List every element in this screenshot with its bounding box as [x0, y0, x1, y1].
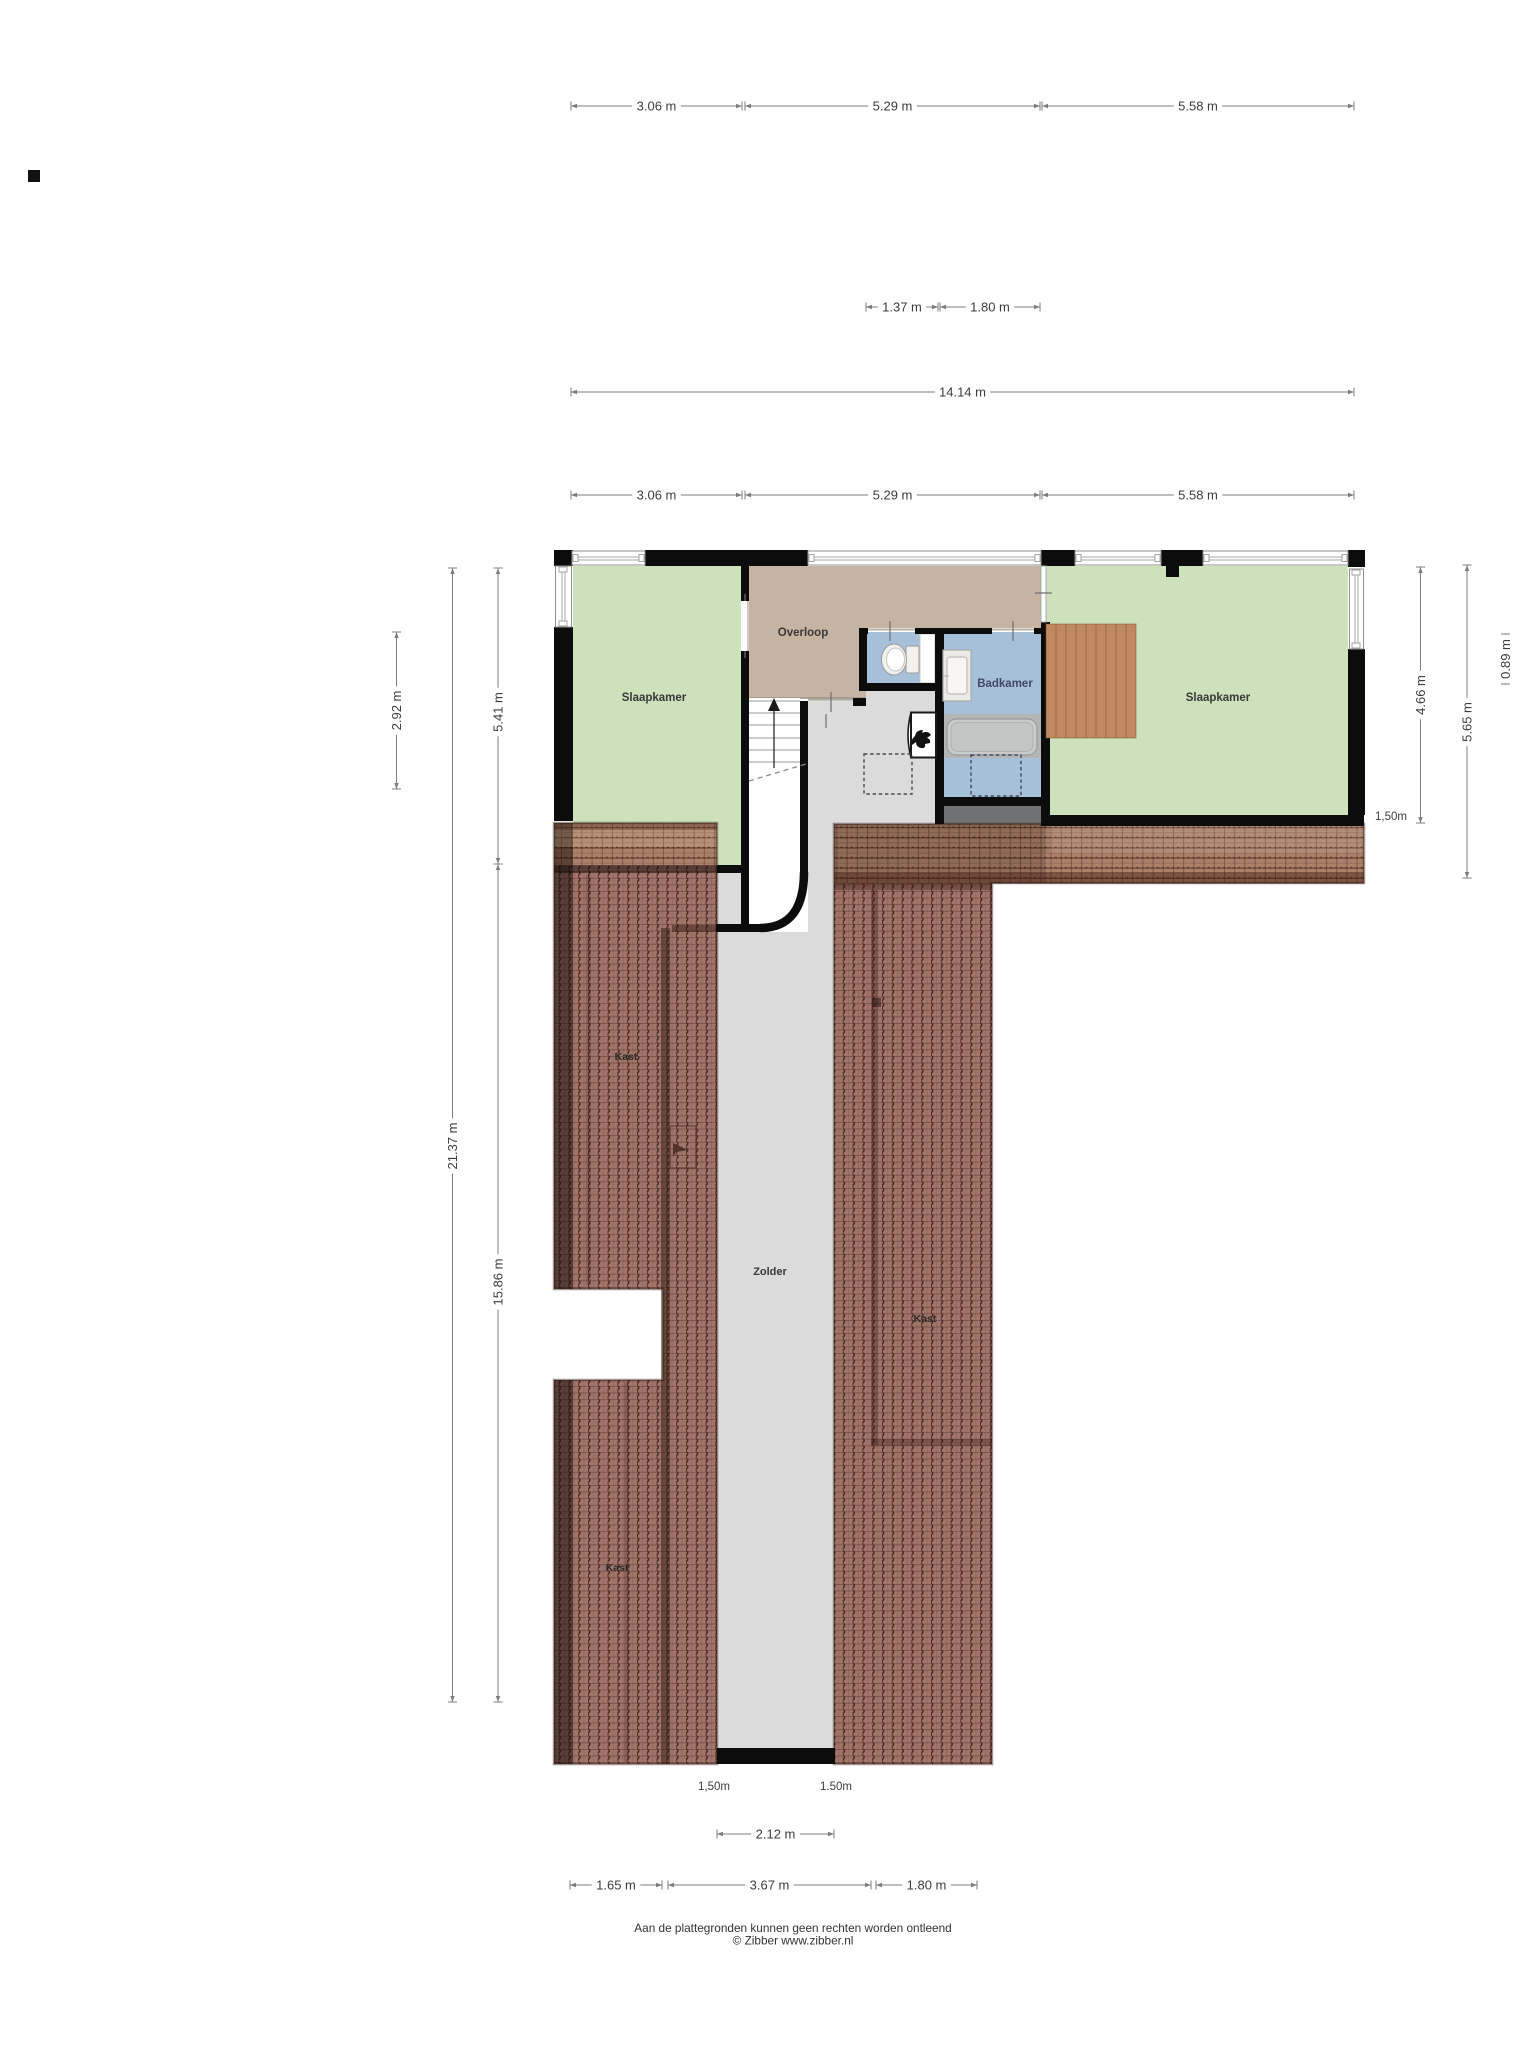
svg-text:4.66 m: 4.66 m [1413, 675, 1428, 715]
svg-text:5.65 m: 5.65 m [1460, 702, 1475, 742]
svg-text:5.29 m: 5.29 m [873, 99, 913, 114]
svg-text:3.06 m: 3.06 m [637, 99, 677, 114]
svg-text:1.50m: 1.50m [820, 1781, 852, 1793]
svg-text:2.12 m: 2.12 m [756, 1827, 796, 1842]
svg-text:Slaapkamer: Slaapkamer [622, 692, 687, 704]
svg-text:2.92 m: 2.92 m [389, 691, 404, 731]
svg-text:Kast: Kast [606, 1562, 629, 1574]
svg-text:1.65 m: 1.65 m [596, 1878, 636, 1893]
svg-text:1,50m: 1,50m [698, 1781, 730, 1793]
svg-text:© Zibber www.zibber.nl: © Zibber www.zibber.nl [733, 1934, 854, 1948]
svg-text:Badkamer: Badkamer [977, 678, 1033, 690]
svg-text:Zolder: Zolder [753, 1266, 787, 1278]
svg-text:5.58 m: 5.58 m [1178, 99, 1218, 114]
svg-text:Slaapkamer: Slaapkamer [1186, 692, 1251, 704]
svg-text:14.14 m: 14.14 m [939, 385, 986, 400]
svg-text:5.29 m: 5.29 m [873, 488, 913, 503]
svg-text:0.89 m: 0.89 m [1498, 639, 1513, 679]
svg-text:3.67 m: 3.67 m [750, 1878, 790, 1893]
svg-text:1.80 m: 1.80 m [970, 300, 1010, 315]
svg-text:21.37 m: 21.37 m [445, 1123, 460, 1170]
svg-text:Kast: Kast [914, 1313, 937, 1325]
svg-text:1.37 m: 1.37 m [882, 300, 922, 315]
svg-text:Kast: Kast [615, 1051, 638, 1063]
svg-text:3.06 m: 3.06 m [637, 488, 677, 503]
svg-text:1.80 m: 1.80 m [907, 1878, 947, 1893]
svg-text:5.58 m: 5.58 m [1178, 488, 1218, 503]
svg-text:5.41 m: 5.41 m [491, 692, 506, 732]
svg-text:Overloop: Overloop [778, 627, 828, 639]
svg-text:1,50m: 1,50m [1375, 811, 1407, 823]
svg-text:15.86 m: 15.86 m [491, 1259, 506, 1306]
